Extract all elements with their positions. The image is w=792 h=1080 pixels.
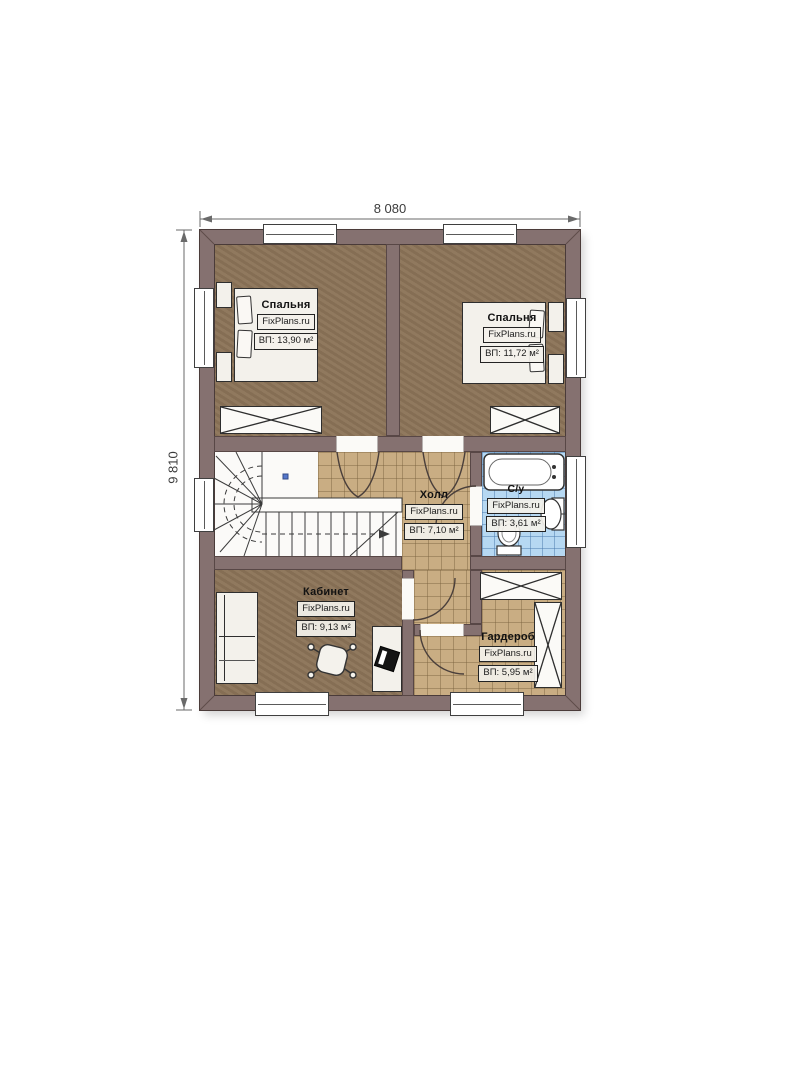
room-label-bedroom-left: Спальня FixPlans.ru ВП: 13,90 м² [238, 299, 334, 350]
wall-office-top [214, 556, 402, 570]
window-bottom-wardrobe [450, 692, 524, 716]
room-label-bathroom: С/у FixPlans.ru ВП: 3,61 м² [484, 484, 548, 532]
room-area: ВП: 11,72 м² [480, 346, 544, 362]
dimension-height-label: 9 810 [166, 433, 181, 503]
room-area: ВП: 9,13 м² [296, 620, 355, 636]
door-opening-bedroom-left [336, 436, 378, 452]
floor-plan-canvas: 8 080 9 810 Спальня FixPlans.ru ВП: 13,9… [0, 0, 792, 1080]
watermark: FixPlans.ru [405, 504, 463, 520]
room-name: Гардероб [481, 631, 535, 643]
window-left-bedroom [194, 288, 214, 368]
room-area: ВП: 7,10 м² [404, 523, 463, 539]
room-label-bedroom-right: Спальня FixPlans.ru ВП: 11,72 м² [464, 312, 560, 363]
room-name: Спальня [262, 299, 311, 311]
sofa-office [216, 592, 258, 684]
window-left-stairs [194, 478, 214, 532]
nightstand-left-top [216, 282, 232, 308]
x-cross [221, 407, 321, 433]
room-label-hall: Холл FixPlans.ru ВП: 7,10 м² [400, 489, 468, 540]
room-area: ВП: 3,61 м² [486, 516, 545, 532]
door-opening-office [402, 578, 414, 620]
window-top-left [263, 224, 337, 244]
window-right-bathroom [566, 456, 586, 548]
window-bottom-office [255, 692, 329, 716]
room-label-office: Кабинет FixPlans.ru ВП: 9,13 м² [276, 586, 376, 637]
wardrobe-unit-bedroom-right [490, 406, 560, 434]
watermark: FixPlans.ru [483, 327, 541, 343]
door-opening-bedroom-right [422, 436, 464, 452]
nightstand-left-bottom [216, 352, 232, 382]
room-name: Кабинет [303, 586, 349, 598]
watermark: FixPlans.ru [297, 601, 355, 617]
room-name: Спальня [488, 312, 537, 324]
room-name: С/у [508, 484, 525, 496]
sofa-cushion-line-2 [219, 660, 255, 661]
window-top-right [443, 224, 517, 244]
sofa-back-line [224, 595, 225, 681]
desk-office [372, 626, 402, 692]
wall-bedrooms-hall [214, 436, 566, 452]
door-opening-bathroom [470, 486, 482, 526]
sofa-cushion-line [219, 636, 255, 637]
room-label-wardrobe: Гардероб FixPlans.ru ВП: 5,95 м² [456, 631, 560, 682]
room-name: Холл [420, 489, 448, 501]
x-cross [491, 407, 559, 433]
room-area: ВП: 13,90 м² [254, 333, 319, 349]
watermark: FixPlans.ru [257, 314, 315, 330]
wardrobe-unit-top [480, 572, 562, 600]
x-cross [481, 573, 561, 599]
wall-bathroom-bottom [470, 556, 566, 570]
dimension-width-label: 8 080 [350, 201, 430, 216]
watermark: FixPlans.ru [487, 498, 545, 514]
watermark: FixPlans.ru [479, 646, 537, 662]
window-right-bedroom [566, 298, 586, 378]
room-area: ВП: 5,95 м² [478, 665, 537, 681]
wall-bedroom-divider [386, 244, 400, 436]
wardrobe-unit-bedroom-left [220, 406, 322, 434]
